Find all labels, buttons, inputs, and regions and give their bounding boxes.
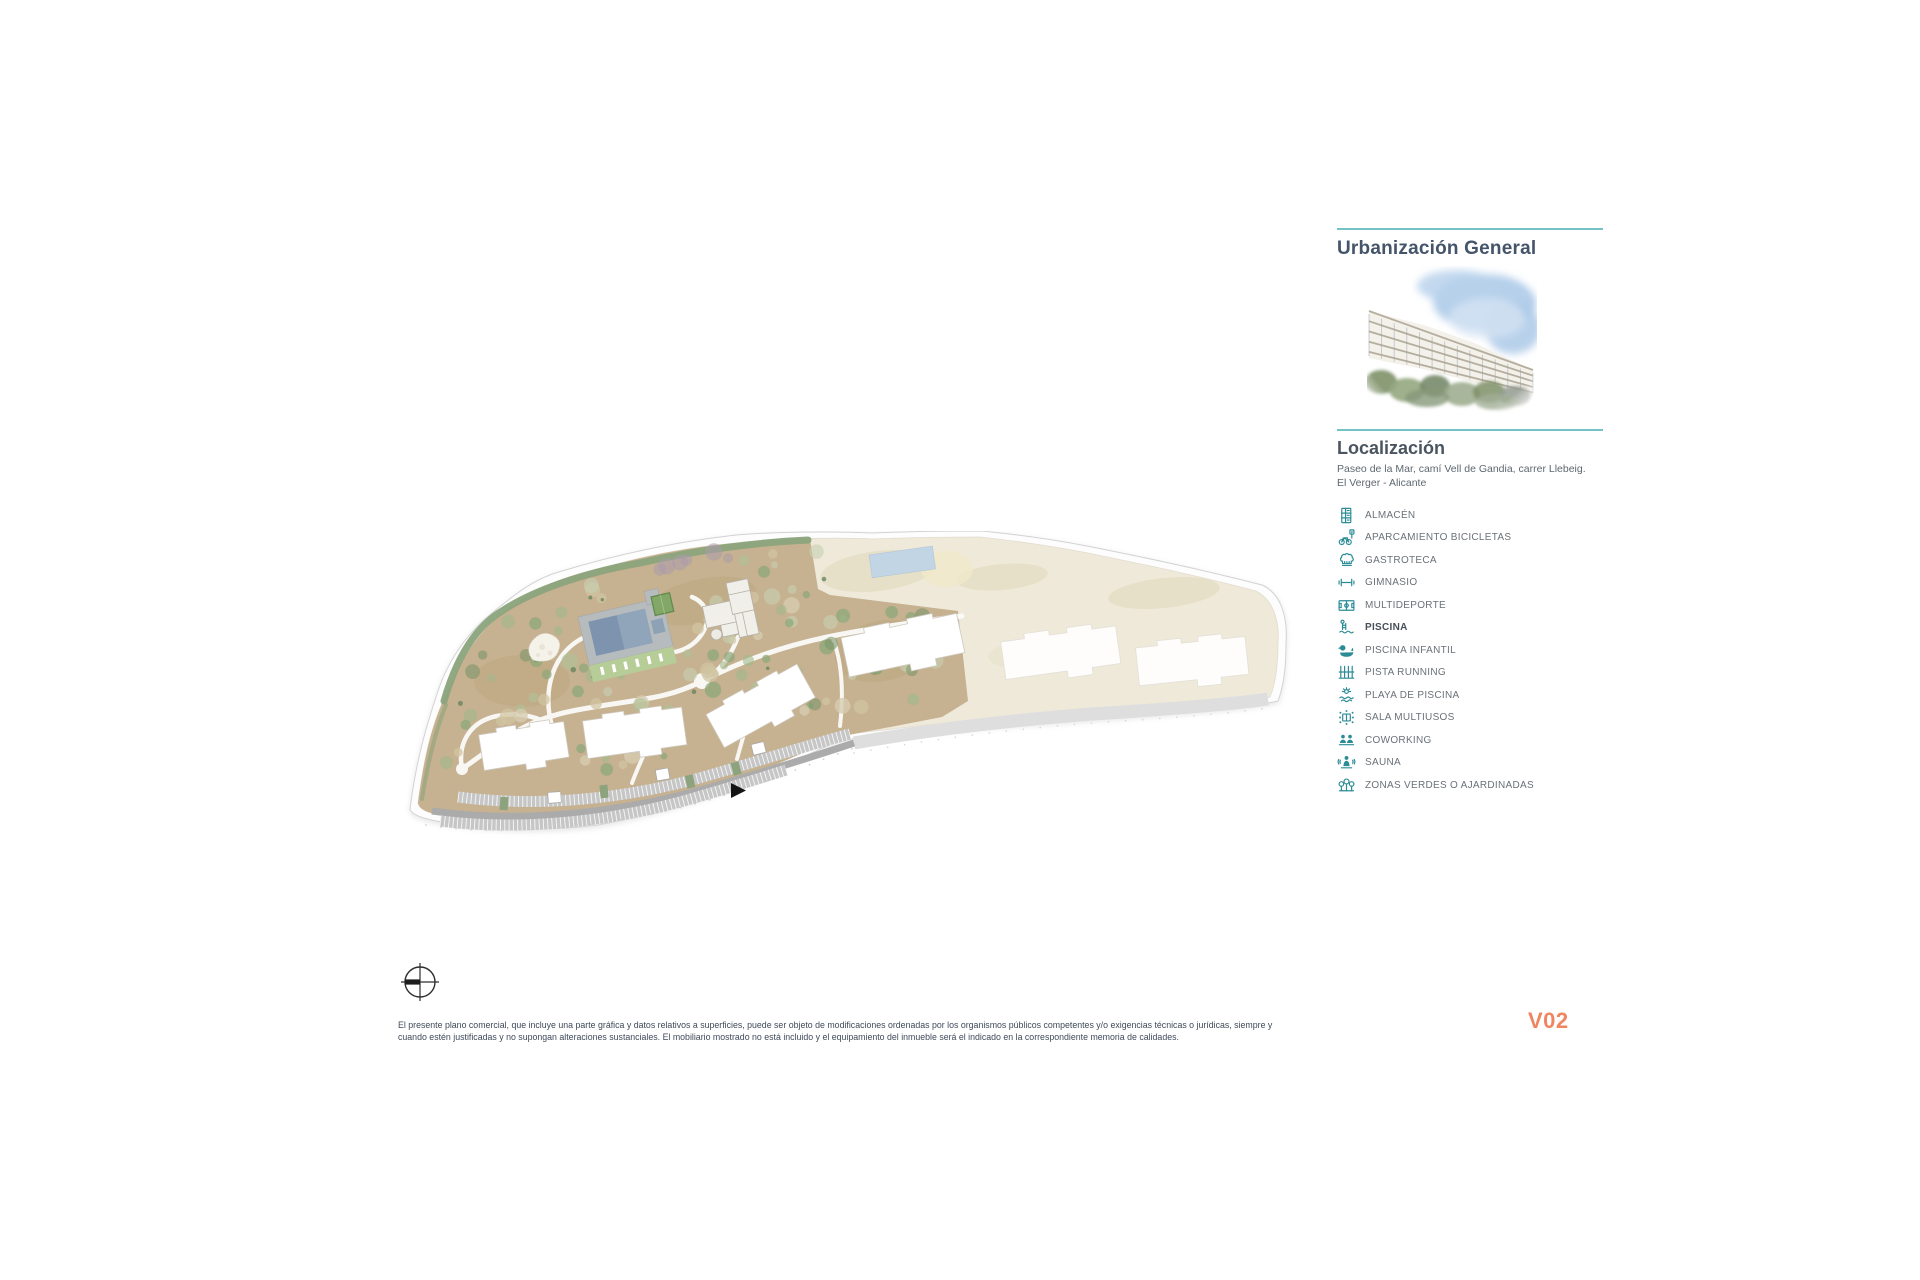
site-plan (402, 531, 1302, 851)
legend-label: APARCAMIENTO BICICLETAS (1365, 532, 1511, 543)
legend-label: PISCINA (1365, 622, 1408, 633)
north-compass-icon (394, 956, 446, 1008)
sports-court-icon (1337, 596, 1356, 615)
amenities-legend: ALMACÉN P APARCAMIENTO BICICLETAS GASTRO… (1337, 506, 1603, 794)
pool-ladder-icon (1337, 618, 1356, 637)
legend-item-piscina: PISCINA (1337, 619, 1603, 637)
section-divider (1337, 228, 1603, 230)
meeting-table-icon (1337, 708, 1356, 727)
coworking-icon (1337, 731, 1356, 750)
building-render-image (1367, 266, 1537, 414)
sports-court (651, 593, 674, 616)
legend-label: GIMNASIO (1365, 577, 1417, 588)
sun-water-icon (1337, 686, 1356, 705)
running-track-icon (1337, 663, 1356, 682)
legend-item-gimnasio: GIMNASIO (1337, 574, 1603, 592)
legend-label: SAUNA (1365, 757, 1401, 768)
legend-label: PISCINA INFANTIL (1365, 645, 1456, 656)
legend-label: ALMACÉN (1365, 510, 1415, 521)
dumbbell-icon (1337, 573, 1356, 592)
sauna-icon (1337, 753, 1356, 772)
section-divider (1337, 429, 1603, 431)
location-heading: Localización (1337, 438, 1603, 459)
chef-hat-icon (1337, 551, 1356, 570)
bike-parking-icon: P (1337, 528, 1356, 547)
location-address: Paseo de la Mar, camí Vell de Gandia, ca… (1337, 463, 1589, 490)
legend-item-coworking: COWORKING (1337, 731, 1603, 749)
page-title: Urbanización General (1337, 238, 1603, 260)
legend-item-aparcamiento-bicicletas: P APARCAMIENTO BICICLETAS (1337, 529, 1603, 547)
legend-item-piscina-infantil: PISCINA INFANTIL (1337, 641, 1603, 659)
legend-item-sauna: SAUNA (1337, 754, 1603, 772)
trees-icon (1337, 776, 1356, 795)
legend-item-sala-multiusos: SALA MULTIUSOS (1337, 709, 1603, 727)
legend-item-almacen: ALMACÉN (1337, 506, 1603, 524)
storage-icon (1337, 506, 1356, 525)
legend-label: SALA MULTIUSOS (1365, 712, 1455, 723)
rubber-duck-icon (1337, 641, 1356, 660)
legend-label: COWORKING (1365, 735, 1432, 746)
legend-item-gastroteca: GASTROTECA (1337, 551, 1603, 569)
version-label: V02 (1528, 1008, 1569, 1034)
legend-label: PLAYA DE PISCINA (1365, 690, 1459, 701)
legal-disclaimer: El presente plano comercial, que incluye… (398, 1019, 1290, 1044)
legend-label: ZONAS VERDES O AJARDINADAS (1365, 780, 1534, 791)
legend-item-multideporte: MULTIDEPORTE (1337, 596, 1603, 614)
legend-label: PISTA RUNNING (1365, 667, 1446, 678)
legend-item-pista-running: PISTA RUNNING (1337, 664, 1603, 682)
legend-label: MULTIDEPORTE (1365, 600, 1446, 611)
info-panel: Urbanización General (1337, 228, 1603, 794)
legend-item-playa-de-piscina: PLAYA DE PISCINA (1337, 686, 1603, 704)
legend-item-zonas-verdes: ZONAS VERDES O AJARDINADAS (1337, 776, 1603, 794)
legend-label: GASTROTECA (1365, 555, 1437, 566)
